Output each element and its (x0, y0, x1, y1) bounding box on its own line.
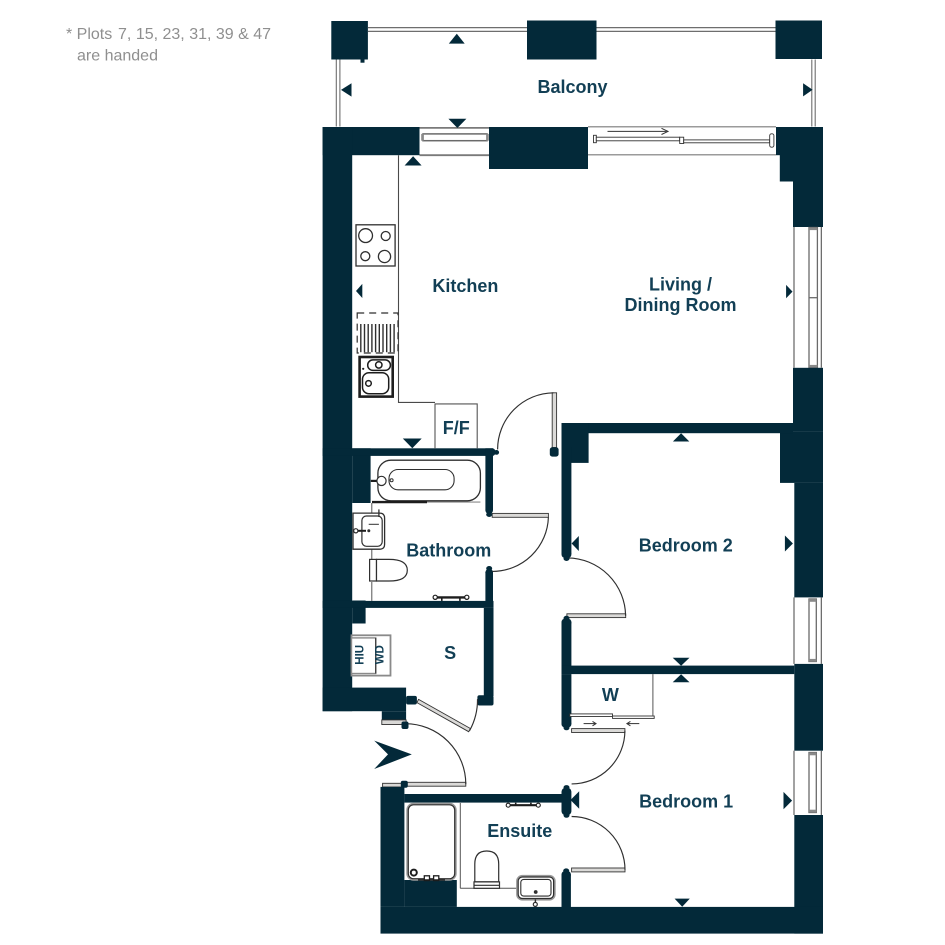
svg-text:Ensuite: Ensuite (487, 821, 552, 841)
svg-text:Bathroom: Bathroom (406, 540, 491, 560)
svg-text:Dining Room: Dining Room (625, 295, 737, 315)
svg-text:Bedroom 2: Bedroom 2 (639, 536, 733, 556)
svg-text:W: W (602, 685, 619, 705)
svg-text:F/F: F/F (443, 418, 470, 438)
svg-text:S: S (444, 643, 456, 663)
svg-text:are handed: are handed (77, 48, 158, 65)
svg-text:* Plots 7, 15, 23, 31, 39 & 4: * Plots 7, 15, 23, 31, 39 & 47 (66, 26, 271, 43)
svg-text:Bedroom 1: Bedroom 1 (639, 792, 733, 812)
svg-text:HIU: HIU (355, 645, 367, 665)
svg-text:Balcony: Balcony (537, 77, 607, 97)
svg-text:Kitchen: Kitchen (432, 276, 498, 296)
svg-text:Living /: Living / (649, 275, 712, 295)
svg-text:WD: WD (375, 645, 387, 664)
